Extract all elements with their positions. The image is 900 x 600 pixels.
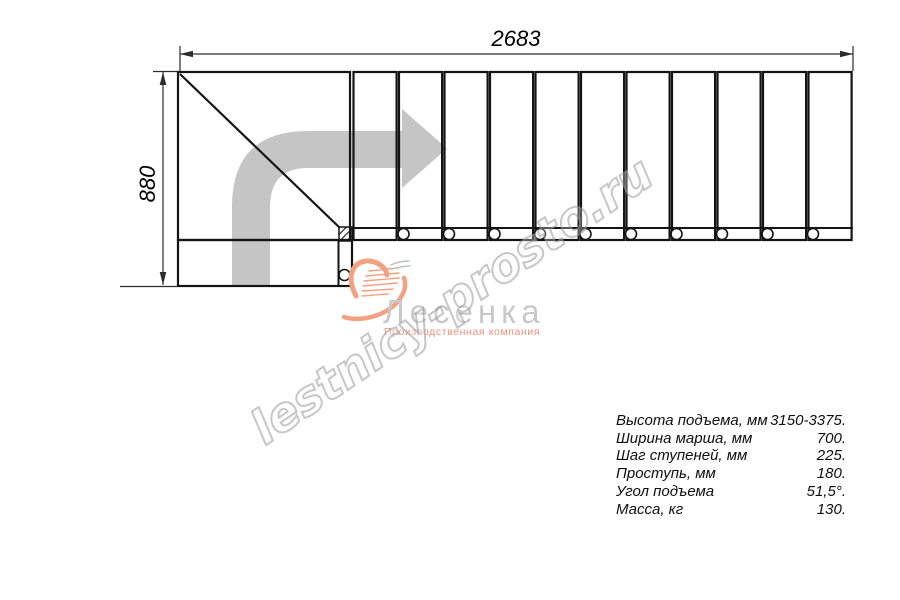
dim-arrow-left-icon	[180, 51, 193, 58]
spec-value: 130.	[770, 501, 846, 519]
baluster-circle	[717, 229, 728, 240]
tread	[445, 72, 488, 240]
spec-value: 700.	[770, 430, 846, 448]
baluster-circle	[444, 229, 455, 240]
spec-label: Угол подъема	[616, 483, 770, 501]
baluster-circle	[671, 229, 682, 240]
tread	[763, 72, 806, 240]
spec-label: Высота подъема, мм	[616, 412, 770, 430]
spec-value: 180.	[770, 465, 846, 483]
spec-value: 51,5°.	[770, 483, 846, 501]
dimension-height-label: 880	[135, 166, 161, 203]
dim-arrow-down-icon	[160, 272, 167, 285]
tread	[490, 72, 533, 240]
dim-arrow-up-icon	[160, 72, 167, 85]
spec-value: 225.	[770, 447, 846, 465]
tread	[718, 72, 761, 240]
entry-baluster-circle	[339, 270, 350, 281]
baluster-circle	[398, 229, 409, 240]
spec-label: Шаг ступеней, мм	[616, 447, 770, 465]
spec-table: Высота подъема, мм 3150-3375. Ширина мар…	[616, 412, 846, 518]
spec-label: Масса, кг	[616, 501, 770, 519]
spec-value: 3150-3375.	[770, 412, 846, 430]
tread	[809, 72, 852, 240]
dimension-width-label: 2683	[492, 26, 541, 52]
baluster-circle	[762, 229, 773, 240]
baluster-circle	[808, 229, 819, 240]
spec-label: Ширина марша, мм	[616, 430, 770, 448]
blueprint-page: 2683 880 Лесенка Производственная компан…	[0, 0, 900, 600]
spec-label: Проступь, мм	[616, 465, 770, 483]
tread	[672, 72, 715, 240]
baluster-circle	[626, 229, 637, 240]
dim-arrow-right-icon	[840, 51, 853, 58]
newel-post-section	[339, 227, 352, 241]
